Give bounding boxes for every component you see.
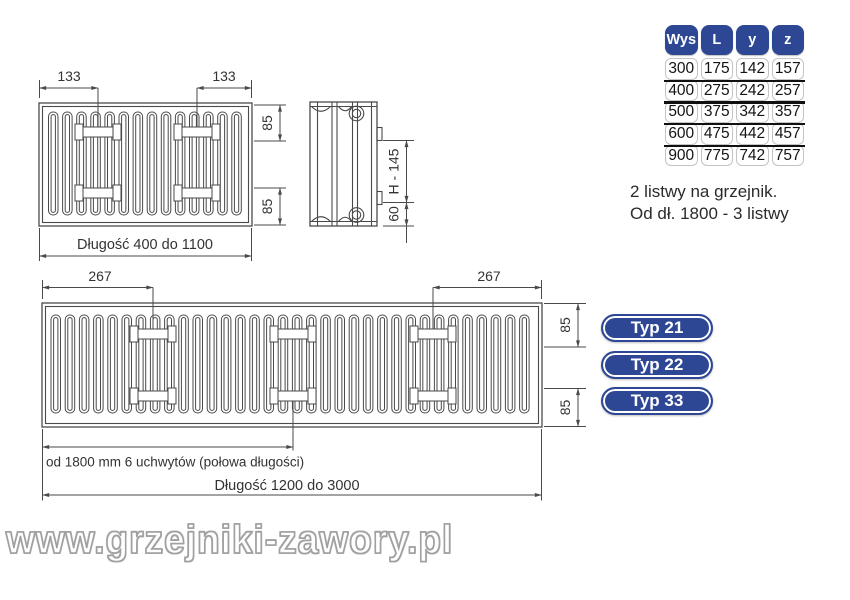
table-cell: 142 xyxy=(736,58,769,80)
dim-label-front-length: Długość 400 do 1100 xyxy=(77,237,213,253)
table-cell: 475 xyxy=(701,123,734,145)
dim-label-long-top-85: 85 xyxy=(557,317,573,333)
dimension-table: Wys L y z 300 175 142 157 400 275 242 25… xyxy=(665,25,804,166)
side-view-drawing: H - 145 60 xyxy=(310,102,414,243)
type-button-group: Typ 21 Typ 22 Typ 33 xyxy=(601,314,713,424)
dim-label-front-top-85: 85 xyxy=(259,115,275,131)
table-cell: 457 xyxy=(772,123,805,145)
row-separator xyxy=(664,80,805,82)
dim-label-side-height: H - 145 xyxy=(386,148,402,194)
table-cell: 375 xyxy=(701,101,734,123)
table-header-wys: Wys xyxy=(665,25,698,55)
typ-33-button[interactable]: Typ 33 xyxy=(601,387,713,415)
dim-label-long-bottom-85: 85 xyxy=(557,400,573,416)
table-cell: 900 xyxy=(665,145,698,167)
table-cell: 342 xyxy=(736,101,769,123)
dim-label-front-left-133: 133 xyxy=(57,68,81,84)
table-cell: 775 xyxy=(701,145,734,167)
dim-label-front-right-133: 133 xyxy=(212,68,236,84)
table-header-y: y xyxy=(736,25,769,55)
radiator-spec-page: 133 133 85 85 Długość 400 do 1100 xyxy=(0,0,850,600)
typ-21-button[interactable]: Typ 21 xyxy=(601,314,713,342)
dim-label-long-length: Długość 1200 do 3000 xyxy=(214,478,359,494)
strips-note: 2 listwy na grzejnik. Od dł. 1800 - 3 li… xyxy=(630,181,789,225)
watermark: www.grzejniki-zawory.pl xyxy=(6,518,453,563)
table-cell: 500 xyxy=(665,101,698,123)
typ-22-button[interactable]: Typ 22 xyxy=(601,351,713,379)
table-cell: 300 xyxy=(665,58,698,80)
table-cell: 242 xyxy=(736,80,769,102)
dim-label-long-left-267: 267 xyxy=(88,268,112,284)
row-separator xyxy=(664,145,805,147)
note-line-1: 2 listwy na grzejnik. xyxy=(630,181,789,203)
table-cell: 400 xyxy=(665,80,698,102)
long-view-drawing: 267 267 85 85 od 1800 mm 6 uchwy xyxy=(42,268,586,501)
row-separator xyxy=(664,123,805,125)
table-cell: 275 xyxy=(701,80,734,102)
table-cell: 175 xyxy=(701,58,734,80)
wall-tab xyxy=(377,192,382,205)
table-cell: 757 xyxy=(772,145,805,167)
table-cell: 257 xyxy=(772,80,805,102)
table-cell: 357 xyxy=(772,101,805,123)
front-view-drawing: 133 133 85 85 Długość 400 do 1100 xyxy=(39,68,286,261)
dim-label-side-60: 60 xyxy=(386,206,402,222)
note-line-2: Od dł. 1800 - 3 listwy xyxy=(630,203,789,225)
row-separator xyxy=(664,101,805,103)
dim-label-front-bottom-85: 85 xyxy=(259,199,275,215)
table-cell: 442 xyxy=(736,123,769,145)
dim-label-long-right-267: 267 xyxy=(477,268,501,284)
dim-label-half-length: od 1800 mm 6 uchwytów (połowa długości) xyxy=(46,455,304,470)
table-cell: 157 xyxy=(772,58,805,80)
table-header-l: L xyxy=(701,25,734,55)
wall-tab xyxy=(377,128,382,141)
table-header-z: z xyxy=(772,25,805,55)
table-cell: 742 xyxy=(736,145,769,167)
side-radiator-outline xyxy=(310,102,377,226)
table-cell: 600 xyxy=(665,123,698,145)
